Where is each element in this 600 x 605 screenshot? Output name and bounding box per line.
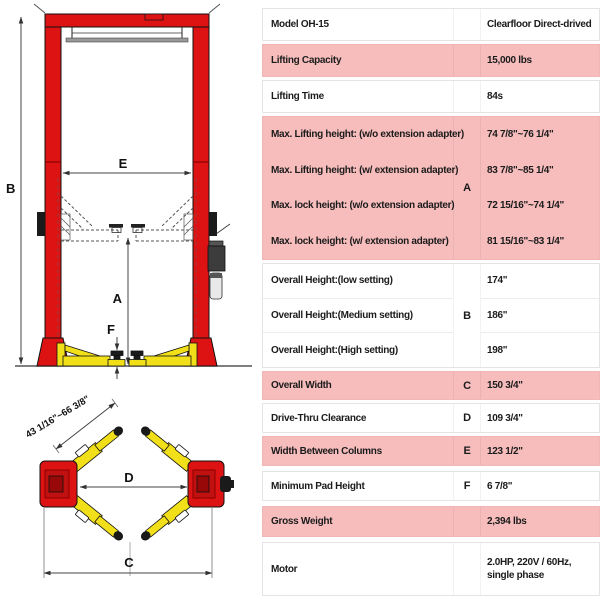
- raised-pads: [109, 224, 145, 233]
- left-column: [45, 27, 61, 366]
- dim-label-b: B: [6, 181, 15, 196]
- spec-value: 186": [481, 299, 599, 334]
- spec-letter-b: B: [453, 264, 481, 367]
- dim-label-e: E: [119, 156, 128, 171]
- dim-label-a: A: [113, 291, 123, 306]
- spec-label: Lifting Time: [263, 81, 453, 112]
- spec-label: Max. lock height: (w/ extension adapter): [263, 224, 453, 260]
- lift-technical-drawing: B E: [0, 0, 262, 600]
- spec-letter-d: D: [453, 404, 481, 432]
- spec-label: Overall Height:(low setting): [263, 264, 453, 299]
- spec-value: 84s: [481, 81, 599, 112]
- spec-label: Gross Weight: [263, 507, 453, 536]
- spec-value: 72 15/16"~74 1/4": [481, 188, 599, 224]
- spec-table: Model OH-15 Clearfloor Direct-drived Lif…: [262, 8, 600, 599]
- spec-row-model: Model OH-15 Clearfloor Direct-drived: [262, 8, 600, 41]
- base-left: [40, 461, 77, 507]
- spec-label: Lifting Capacity: [263, 45, 453, 76]
- right-column: [193, 27, 209, 366]
- spec-row-lifting-time: Lifting Time 84s: [262, 80, 600, 113]
- dim-c: C: [44, 508, 212, 578]
- spec-letter-c: C: [453, 372, 481, 399]
- dim-label-d: D: [124, 470, 133, 485]
- spec-letter: [453, 81, 481, 112]
- shutoff-bar: [66, 27, 188, 42]
- spec-row-lifting-capacity: Lifting Capacity 15,000 lbs: [262, 44, 600, 77]
- power-unit-top: [220, 476, 231, 492]
- left-side-block: [37, 212, 45, 236]
- swing-arm-upper-right: [139, 420, 197, 471]
- dim-label-c: C: [124, 555, 134, 570]
- spec-value: 2.0HP, 220V / 60Hz, single phase: [481, 543, 599, 595]
- spec-value: 198": [481, 333, 599, 367]
- spec-letter: [453, 9, 481, 40]
- spec-row-min-pad-height: Minimum Pad Height F 6 7/8": [262, 471, 600, 501]
- lift-front-view: B E: [6, 4, 252, 379]
- lift-diagram-svg: B E: [0, 0, 262, 600]
- spec-row-drive-thru: Drive-Thru Clearance D 109 3/4": [262, 403, 600, 433]
- spec-label: Max. lock height: (w/o extension adapter…: [263, 188, 453, 224]
- spec-value: 2,394 lbs: [481, 507, 599, 536]
- crossbar-center-detail: [145, 14, 163, 20]
- spec-letter: [453, 45, 481, 76]
- spec-letter-f: F: [453, 472, 481, 500]
- dim-label-f: F: [107, 322, 115, 337]
- spec-letter-a: A: [453, 117, 481, 259]
- lift-arm-front-left: [57, 343, 125, 366]
- spec-value: 150 3/4": [481, 372, 599, 399]
- spec-value: 123 1/2": [481, 437, 599, 465]
- spec-label: Overall Height:(Medium setting): [263, 299, 453, 334]
- lift-arm-front-right: [129, 343, 197, 366]
- spec-value: Clearfloor Direct-drived: [481, 9, 599, 40]
- spec-label: Max. Lifting height: (w/o extension adap…: [263, 117, 453, 153]
- spec-value: 74 7/8"~76 1/4": [481, 117, 599, 153]
- spec-letter: [453, 507, 481, 536]
- raised-arm-dashed-right: [136, 196, 193, 241]
- dim-b: B: [6, 4, 220, 364]
- dim-d: D: [80, 470, 187, 487]
- spec-label: Model OH-15: [263, 9, 453, 40]
- spec-value: 81 15/16"~83 1/4": [481, 224, 599, 260]
- spec-letter-e: E: [453, 437, 481, 465]
- spec-row-motor: Motor 2.0HP, 220V / 60Hz, single phase: [262, 542, 600, 596]
- spec-label: Minimum Pad Height: [263, 472, 453, 500]
- spec-label: Motor: [263, 543, 453, 595]
- spec-row-overall-width: Overall Width C 150 3/4": [262, 371, 600, 400]
- dim-a: A: [113, 238, 128, 364]
- base-right: [188, 461, 234, 507]
- top-crossbar: [45, 14, 209, 27]
- right-side-block: [209, 212, 217, 236]
- spec-label: Width Between Columns: [263, 437, 453, 465]
- spec-label: Overall Height:(High setting): [263, 333, 453, 367]
- dim-e: E: [63, 156, 191, 173]
- spec-label: Overall Width: [263, 372, 453, 399]
- lift-top-view: 43 1/16"~66 3/8": [24, 394, 234, 578]
- spec-group-a: Max. Lifting height: (w/o extension adap…: [262, 116, 600, 260]
- spec-value: 6 7/8": [481, 472, 599, 500]
- spec-value: 109 3/4": [481, 404, 599, 432]
- spec-letter: [453, 543, 481, 595]
- spec-value: 83 7/8"~85 1/4": [481, 153, 599, 189]
- spec-label: Max. Lifting height: (w/ extension adapt…: [263, 153, 453, 189]
- spec-row-gross-weight: Gross Weight 2,394 lbs: [262, 506, 600, 537]
- dim-f: F: [107, 322, 117, 379]
- spec-value: 174": [481, 264, 599, 299]
- arm-reach-label: 43 1/16"~66 3/8": [24, 394, 92, 441]
- raised-arm-dashed-left: [61, 196, 118, 241]
- spec-row-width-between-columns: Width Between Columns E 123 1/2": [262, 436, 600, 466]
- spec-label: Drive-Thru Clearance: [263, 404, 453, 432]
- spec-group-b: Overall Height:(low setting) Overall Hei…: [262, 263, 600, 368]
- spec-value: 15,000 lbs: [481, 45, 599, 76]
